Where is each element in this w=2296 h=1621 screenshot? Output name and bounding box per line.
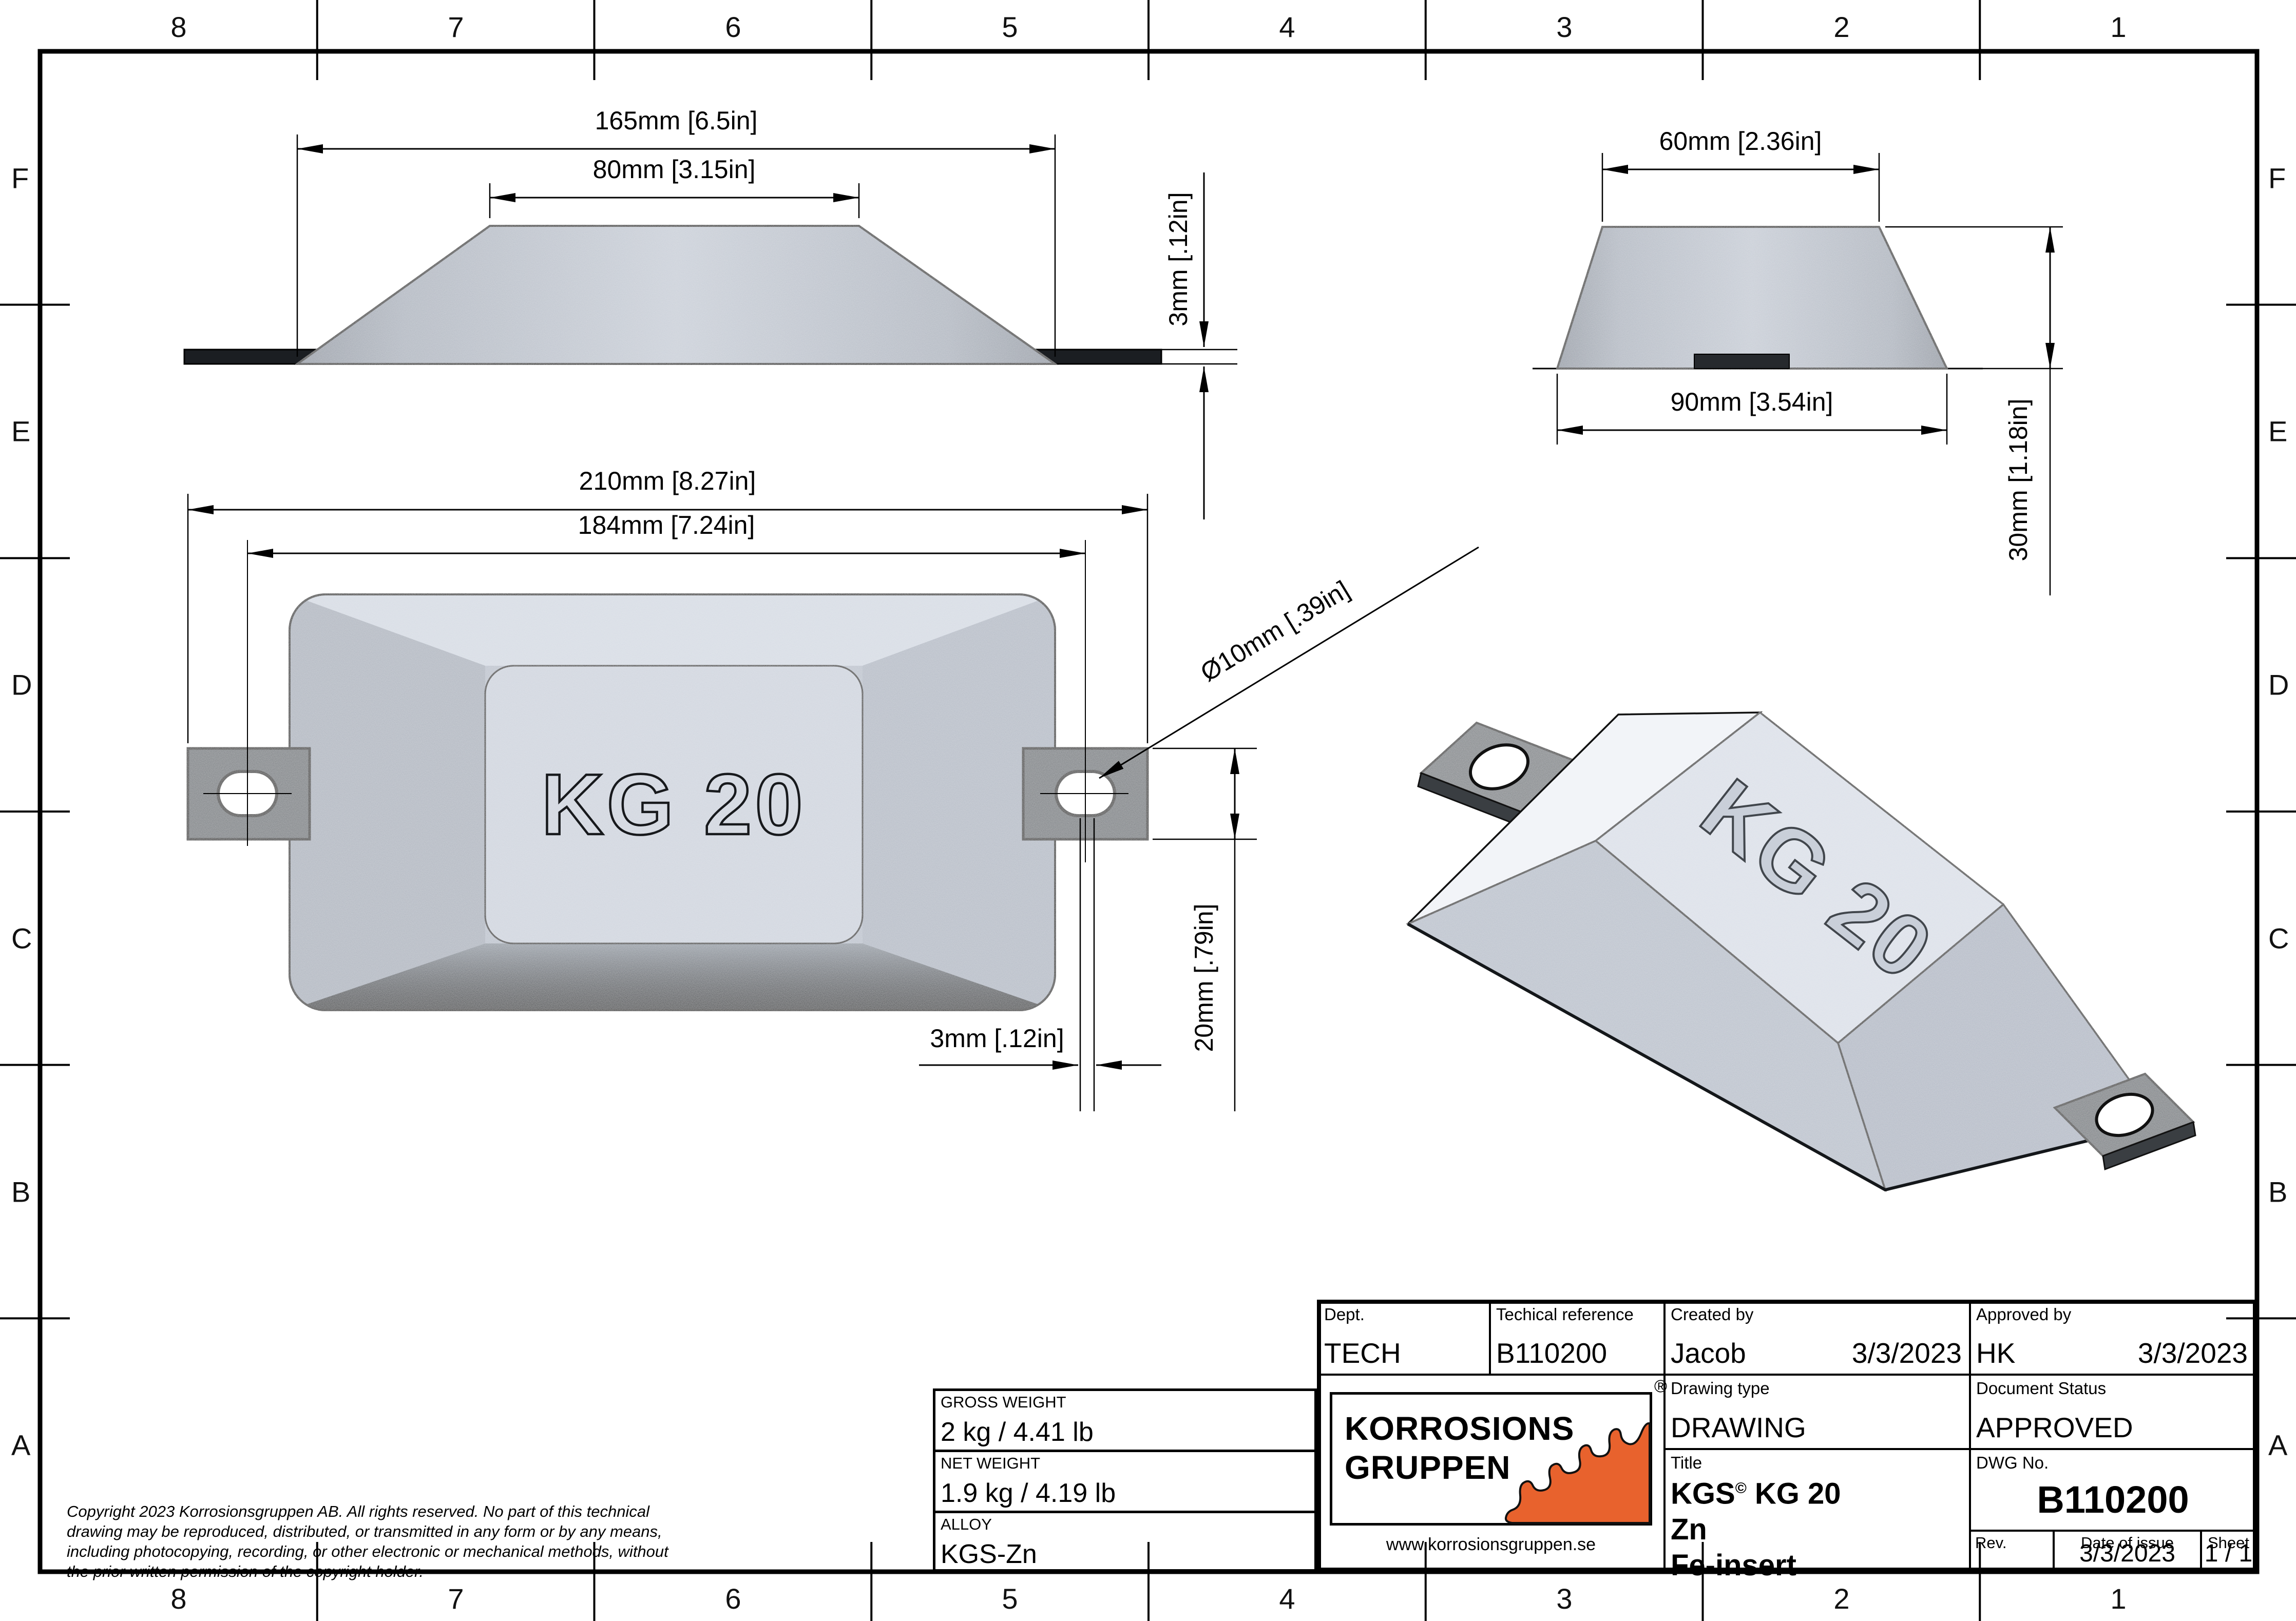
dim-plan-tab-height: 20mm [.79in] [1190,903,1218,1052]
col-label: 7 [448,1582,464,1615]
iso-front-slope-face [1838,904,2160,1190]
col-label: 5 [1002,1582,1018,1615]
copyright-line: drawing may be reproduced, distributed, … [67,1521,714,1541]
title-line3: Fe-insert [1671,1548,1841,1584]
row-label: B [11,1175,30,1209]
row-label: C [11,922,32,955]
dept-label: Dept. [1319,1302,1489,1324]
row-label: F [11,162,29,195]
net-weight-label: NET WEIGHT [935,1452,1314,1473]
dim-end-bottom-width: 90mm [3.54in] [1671,388,1833,416]
iso-left-tab [1418,723,1577,825]
dim-end-top-width: 60mm [2.36in] [1659,127,1822,156]
iso-end-face [1408,712,1760,924]
end-view-insert [1694,354,1789,369]
plan-extension-lines [188,494,1257,1111]
plan-view: KG 20 210mm [8.27in] 184mm [7 [188,467,1479,1111]
iso-top-plateau [1596,712,2003,1043]
col-label: 3 [1556,1582,1572,1615]
copyright-line: including photocopying, recording, or ot… [67,1541,714,1561]
net-weight-value: 1.9 kg / 4.19 lb [935,1473,1314,1509]
left-tab-hole [218,771,277,816]
date-of-issue-value: 3/3/2023 [2055,1539,2200,1568]
col-label: 8 [170,10,186,44]
col-label: 6 [725,1582,741,1615]
iso-bottom-edge [1408,924,2160,1190]
technical-reference-label: Techical reference [1491,1302,1663,1324]
dim-side-thickness: 3mm [.12in] [1164,192,1193,326]
dim-side-top-width: 80mm [3.15in] [593,155,756,184]
dim-plan-overall: 210mm [8.27in] [579,467,756,495]
title-copyright-mark: © [1735,1480,1747,1497]
col-label: 7 [448,10,464,44]
technical-reference-cell: Techical reference B110200 [1489,1300,1666,1376]
rev-cell: Rev. [1969,1530,2055,1572]
plan-right-tab [1023,748,1147,839]
gross-weight-value: 2 kg / 4.41 lb [935,1412,1314,1448]
col-label: 4 [1279,10,1295,44]
registered-mark: ® [1654,1377,1667,1397]
document-status-label: Document Status [1971,1376,2255,1398]
plan-emboss-text: KG 20 [541,756,806,853]
iso-left-slope-face [1408,841,1885,1190]
dept-value: TECH [1319,1337,1401,1373]
title-line1: KGS [1671,1477,1735,1510]
iso-left-tab-hole [1464,737,1535,797]
drawing-type-value: DRAWING [1666,1411,1806,1447]
dim-end-height: 30mm [1.18in] [2004,399,2033,562]
dept-cell: Dept. TECH [1317,1300,1491,1376]
end-view-extension-lines [1557,153,2063,445]
drawing-type-label: Drawing type [1666,1376,1969,1398]
technical-drawing-sheet: { "sheet": { "columns": ["8","7","6","5"… [0,0,2296,1621]
copyright-line: Copyright 2023 Korrosionsgruppen AB. All… [67,1501,714,1521]
net-weight-row: NET WEIGHT 1.9 kg / 4.19 lb [933,1450,1317,1513]
title-line2: Zn [1671,1512,1841,1548]
col-label: 1 [2110,10,2126,44]
approved-by-cell: Approved by HK 3/3/2023 [1969,1300,2257,1376]
logo-wordmark: KORROSIONS GRUPPEN [1345,1409,1574,1487]
dim-side-length: 165mm [6.5in] [595,106,758,135]
rev-label: Rev. [1971,1532,2053,1552]
plan-anode-body [290,594,1055,1010]
side-view-dimension-lines [297,149,1204,519]
col-label: 5 [1002,10,1018,44]
dwg-no-value: B110200 [1971,1478,2255,1521]
iso-right-tab-hole [2091,1088,2158,1143]
iso-right-tab [2055,1074,2195,1169]
title-line1-rest: KG 20 [1747,1477,1841,1510]
company-url: www.korrosionsgruppen.se [1330,1535,1652,1555]
col-label: 4 [1279,1582,1295,1615]
right-tab-hole [1056,771,1115,816]
copyright-line: the prior written permission of the copy… [67,1561,714,1581]
row-label: A [11,1429,30,1462]
plan-top-plateau [485,666,863,943]
row-label: A [2268,1429,2287,1462]
approved-by-label: Approved by [1971,1302,2255,1324]
approved-by-name: HK [1971,1337,2015,1373]
col-label: 2 [1833,1582,1849,1615]
dim-plan-hole-spacing: 184mm [7.24in] [578,511,755,539]
date-of-issue-cell: Date of issue 3/3/2023 [2053,1530,2202,1572]
row-label: E [2268,415,2287,448]
col-label: 2 [1833,10,1849,44]
technical-reference-value: B110200 [1491,1337,1607,1373]
created-by-name: Jacob [1666,1337,1746,1373]
dwg-no-label: DWG No. [1971,1450,2255,1473]
approved-date: 3/3/2023 [2138,1337,2248,1369]
document-status-value: APPROVED [1971,1411,2133,1447]
gross-weight-label: GROSS WEIGHT [935,1391,1314,1412]
row-label: F [2268,162,2286,195]
created-by-label: Created by [1666,1302,1969,1324]
isometric-view: KG 20 [1408,712,2195,1190]
col-label: 8 [170,1582,186,1615]
side-view-insert-plate [184,350,1161,364]
gross-weight-row: GROSS WEIGHT 2 kg / 4.41 lb [933,1388,1317,1452]
col-label: 3 [1556,10,1572,44]
plan-dimension-lines [188,510,1479,1111]
row-label: D [2268,668,2289,702]
logo-line1: KORROSIONS [1345,1409,1574,1448]
dwg-no-cell: DWG No. B110200 [1969,1448,2257,1532]
alloy-label: ALLOY [935,1513,1314,1534]
sheet-cell: Sheet 1 / 1 [2200,1530,2257,1572]
copyright-note: Copyright 2023 Korrosionsgruppen AB. All… [67,1501,714,1581]
end-view-anode-body [1557,227,1947,369]
side-view: 165mm [6.5in] 80mm [3.15in] 3mm [.12in] [184,106,1237,519]
iso-emboss-text: KG 20 [1684,761,1951,999]
drawing-title: KGS© KG 20 Zn Fe-insert [1671,1471,1841,1584]
drawing-type-cell: Drawing type DRAWING [1663,1374,1971,1450]
document-status-cell: Document Status APPROVED [1969,1374,2257,1450]
row-label: E [11,415,30,448]
title-label: Title [1666,1450,1969,1473]
dim-plan-hole-diameter: Ø10mm [.39in] [1196,575,1354,687]
sheet-value: 1 / 1 [2202,1539,2255,1568]
side-view-extension-lines [297,134,1237,364]
alloy-row: ALLOY KGS-Zn [933,1511,1317,1572]
end-view: 60mm [2.36in] 90mm [3.54in] 30mm [1.18in… [1533,127,2063,595]
end-view-dimension-lines [1557,169,2050,595]
row-label: C [2268,922,2289,955]
created-date: 3/3/2023 [1852,1337,1962,1369]
plan-centerlines [203,540,1128,862]
created-by-cell: Created by Jacob 3/3/2023 [1663,1300,1971,1376]
plan-left-tab [188,748,310,839]
col-label: 6 [725,10,741,44]
row-label: B [2268,1175,2287,1209]
side-view-anode-body [297,226,1055,364]
company-logo: KORROSIONS GRUPPEN [1330,1392,1652,1526]
col-label: 1 [2110,1582,2126,1615]
alloy-value: KGS-Zn [935,1534,1314,1570]
row-label: D [11,668,32,702]
logo-line2: GRUPPEN [1345,1448,1574,1487]
title-cell: Title KGS© KG 20 Zn Fe-insert [1663,1448,1971,1572]
dim-plan-offset: 3mm [.12in] [930,1024,1064,1053]
